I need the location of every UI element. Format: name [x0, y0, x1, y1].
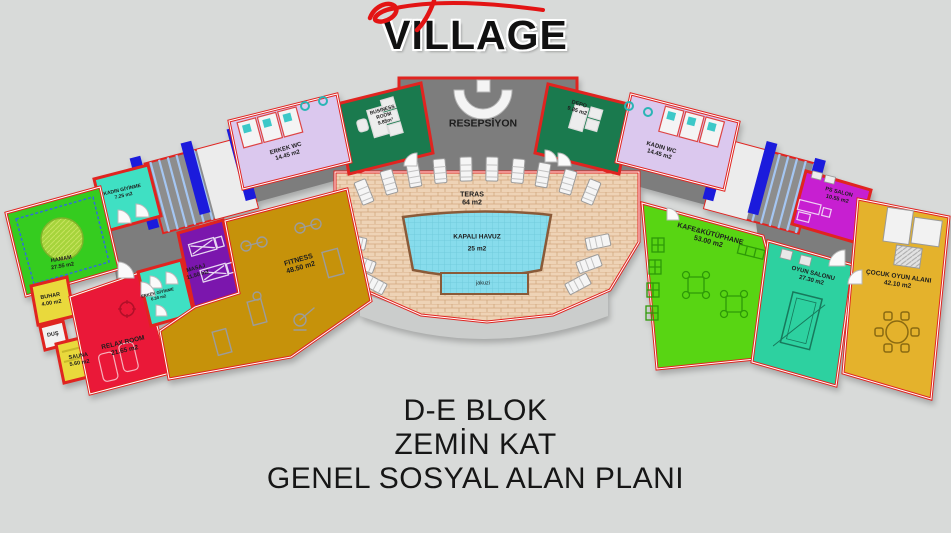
floor-plan-page: VILLAGE [0, 0, 951, 533]
label-jakuzi: jakuzi [476, 281, 490, 288]
hamam-gobektasi [41, 218, 83, 260]
room-cocuk-oyun [843, 199, 949, 399]
plan-title-block: D-E BLOK ZEMİN KAT GENEL SOSYAL ALAN PLA… [0, 394, 951, 496]
label-kapali-havuz: KAPALI HAVUZ25 m2 [453, 232, 500, 257]
label-teras: TERAS64 m2 [460, 192, 484, 209]
label-resepsiyon: RESEPSİYON [449, 118, 517, 131]
plan-title-description: GENEL SOSYAL ALAN PLANI [0, 462, 951, 496]
plan-title-floor: ZEMİN KAT [0, 428, 951, 462]
logo-script-flourish [355, 0, 565, 34]
plan-title-block-name: D-E BLOK [0, 394, 951, 428]
